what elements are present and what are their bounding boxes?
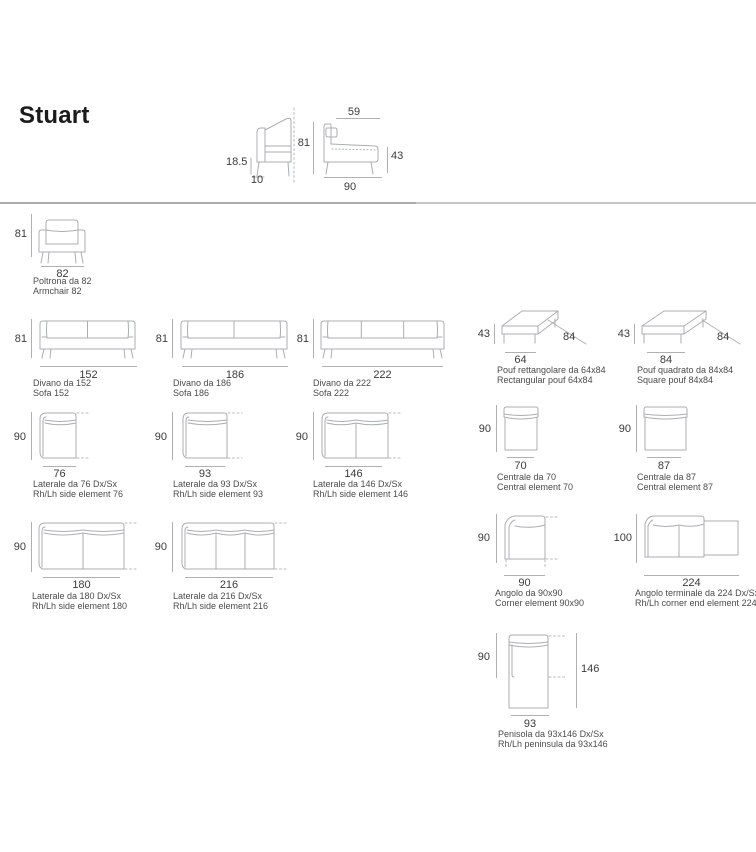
central-70-caption: Centrale da 70 Central element 70	[497, 473, 573, 492]
side-180-drawing	[36, 521, 136, 573]
side-93-drawing	[180, 411, 242, 461]
peninsula-93-height-dim: 90	[472, 651, 490, 663]
corner-90-height-line	[496, 514, 497, 563]
side-93-height-line	[172, 412, 173, 460]
side-76-caption: Laterale da 76 Dx/Sx Rh/Lh side element …	[33, 480, 123, 499]
corner-90-caption: Angolo da 90x90 Corner element 90x90	[495, 589, 584, 608]
sofa-152-height-line	[31, 319, 32, 358]
pouf-square-height-line	[634, 324, 635, 344]
spec-sheet-page: Stuart 18.5 10 81 59 43 90 81 82	[0, 0, 756, 852]
sofa-side-view-drawing	[320, 118, 384, 176]
armchair-caption: Poltrona da 82 Armchair 82	[33, 277, 92, 296]
side-216-width-dim: 216	[185, 579, 273, 591]
side-216-height-line	[172, 522, 173, 572]
armchair-height-line	[31, 214, 32, 257]
detail-seat-height-dim: 43	[391, 150, 403, 162]
central-87-width-dim: 87	[647, 460, 681, 472]
side-146-height-line	[313, 412, 314, 460]
detail-seat-height-dim-line	[387, 147, 388, 173]
peninsula-93-length-line	[576, 633, 577, 708]
sofa-222-drawing	[319, 317, 446, 358]
pouf-rect-width-line	[505, 352, 536, 353]
sofa-222-caption: Divano da 222 Sofa 222	[313, 379, 371, 398]
side-76-height-line	[31, 412, 32, 460]
detail-seat-depth-dim-line	[336, 118, 380, 119]
peninsula-93-width-line	[511, 715, 549, 716]
side-146-width-line	[325, 466, 382, 467]
section-divider	[0, 202, 756, 204]
sofa-186-width-line	[182, 366, 288, 367]
armchair-width-line	[41, 266, 84, 267]
detail-arm-depth-dim: 10	[250, 174, 264, 186]
detail-seat-depth-dim: 59	[344, 106, 364, 118]
pouf-square-height-dim: 43	[612, 328, 630, 340]
pouf-rect-height-dim: 43	[472, 328, 490, 340]
detail-depth-dim: 90	[340, 181, 360, 193]
detail-leg-height-dim: 18.5	[226, 156, 246, 168]
side-76-height-dim: 90	[8, 431, 26, 443]
side-180-width-line	[43, 577, 120, 578]
central-87-drawing	[642, 405, 689, 451]
central-70-drawing	[502, 405, 540, 451]
central-70-width-dim: 70	[507, 460, 534, 472]
corner-end-224-caption: Angolo terminale da 224 Dx/Sx Rh/Lh corn…	[635, 589, 756, 608]
side-146-caption: Laterale da 146 Dx/Sx Rh/Lh side element…	[313, 480, 408, 499]
sofa-152-caption: Divano da 152 Sofa 152	[33, 379, 91, 398]
central-87-width-line	[647, 457, 681, 458]
pouf-square-caption: Pouf quadrato da 84x84 Square pouf 84x84	[637, 366, 733, 385]
detail-height-dim: 81	[294, 137, 310, 149]
central-70-height-line	[496, 405, 497, 452]
side-93-width-line	[185, 466, 225, 467]
corner-90-drawing	[502, 514, 560, 570]
side-146-height-dim: 90	[290, 431, 308, 443]
side-216-caption: Laterale da 216 Dx/Sx Rh/Lh side element…	[173, 592, 268, 611]
side-76-drawing	[37, 411, 89, 461]
corner-90-height-dim: 90	[472, 532, 490, 544]
corner-end-224-height-dim: 100	[608, 532, 632, 544]
pouf-rect-depth-dim: 84	[563, 331, 575, 343]
pouf-rect-caption: Pouf rettangolare da 64x84 Rectangular p…	[497, 366, 606, 385]
side-180-height-dim: 90	[8, 541, 26, 553]
corner-end-224-width-line	[644, 575, 739, 576]
sofa-222-width-line	[322, 366, 443, 367]
side-93-caption: Laterale da 93 Dx/Sx Rh/Lh side element …	[173, 480, 263, 499]
sofa-152-width-line	[40, 366, 137, 367]
peninsula-93-drawing	[505, 632, 567, 712]
peninsula-93-height-line	[496, 633, 497, 678]
sofa-222-height-line	[313, 319, 314, 358]
central-87-height-dim: 90	[613, 423, 631, 435]
side-216-width-line	[185, 577, 273, 578]
corner-90-width-line	[504, 575, 545, 576]
side-93-height-dim: 90	[149, 431, 167, 443]
corner-end-224-height-line	[636, 514, 637, 563]
side-180-height-line	[31, 522, 32, 572]
side-216-drawing	[179, 521, 287, 573]
armchair-drawing	[36, 217, 88, 264]
sofa-222-height-dim: 81	[291, 333, 309, 345]
sofa-186-drawing	[179, 317, 289, 358]
pouf-square-width-line	[647, 352, 685, 353]
central-70-width-line	[507, 457, 534, 458]
pouf-square-depth-dim: 84	[717, 331, 729, 343]
peninsula-93-caption: Penisola da 93x146 Dx/Sx Rh/Lh peninsula…	[498, 730, 608, 749]
sofa-186-caption: Divano da 186 Sofa 186	[173, 379, 231, 398]
side-216-height-dim: 90	[149, 541, 167, 553]
peninsula-93-length-dim: 146	[581, 663, 599, 675]
side-76-width-line	[43, 466, 76, 467]
central-87-caption: Centrale da 87 Central element 87	[637, 473, 713, 492]
central-70-height-dim: 90	[473, 423, 491, 435]
sofa-152-drawing	[38, 317, 137, 358]
armchair-height-dim: 81	[9, 228, 27, 240]
detail-height-dim-line	[313, 122, 314, 174]
pouf-rect-height-line	[494, 324, 495, 344]
central-87-height-line	[636, 405, 637, 452]
sofa-152-height-dim: 81	[9, 333, 27, 345]
sofa-186-height-dim: 81	[150, 333, 168, 345]
side-180-width-dim: 180	[43, 579, 120, 591]
corner-end-224-drawing	[642, 514, 742, 564]
page-title: Stuart	[19, 102, 90, 130]
side-180-caption: Laterale da 180 Dx/Sx Rh/Lh side element…	[32, 592, 127, 611]
sofa-186-height-line	[172, 319, 173, 358]
detail-depth-dim-line	[324, 177, 382, 178]
side-146-drawing	[319, 411, 401, 461]
